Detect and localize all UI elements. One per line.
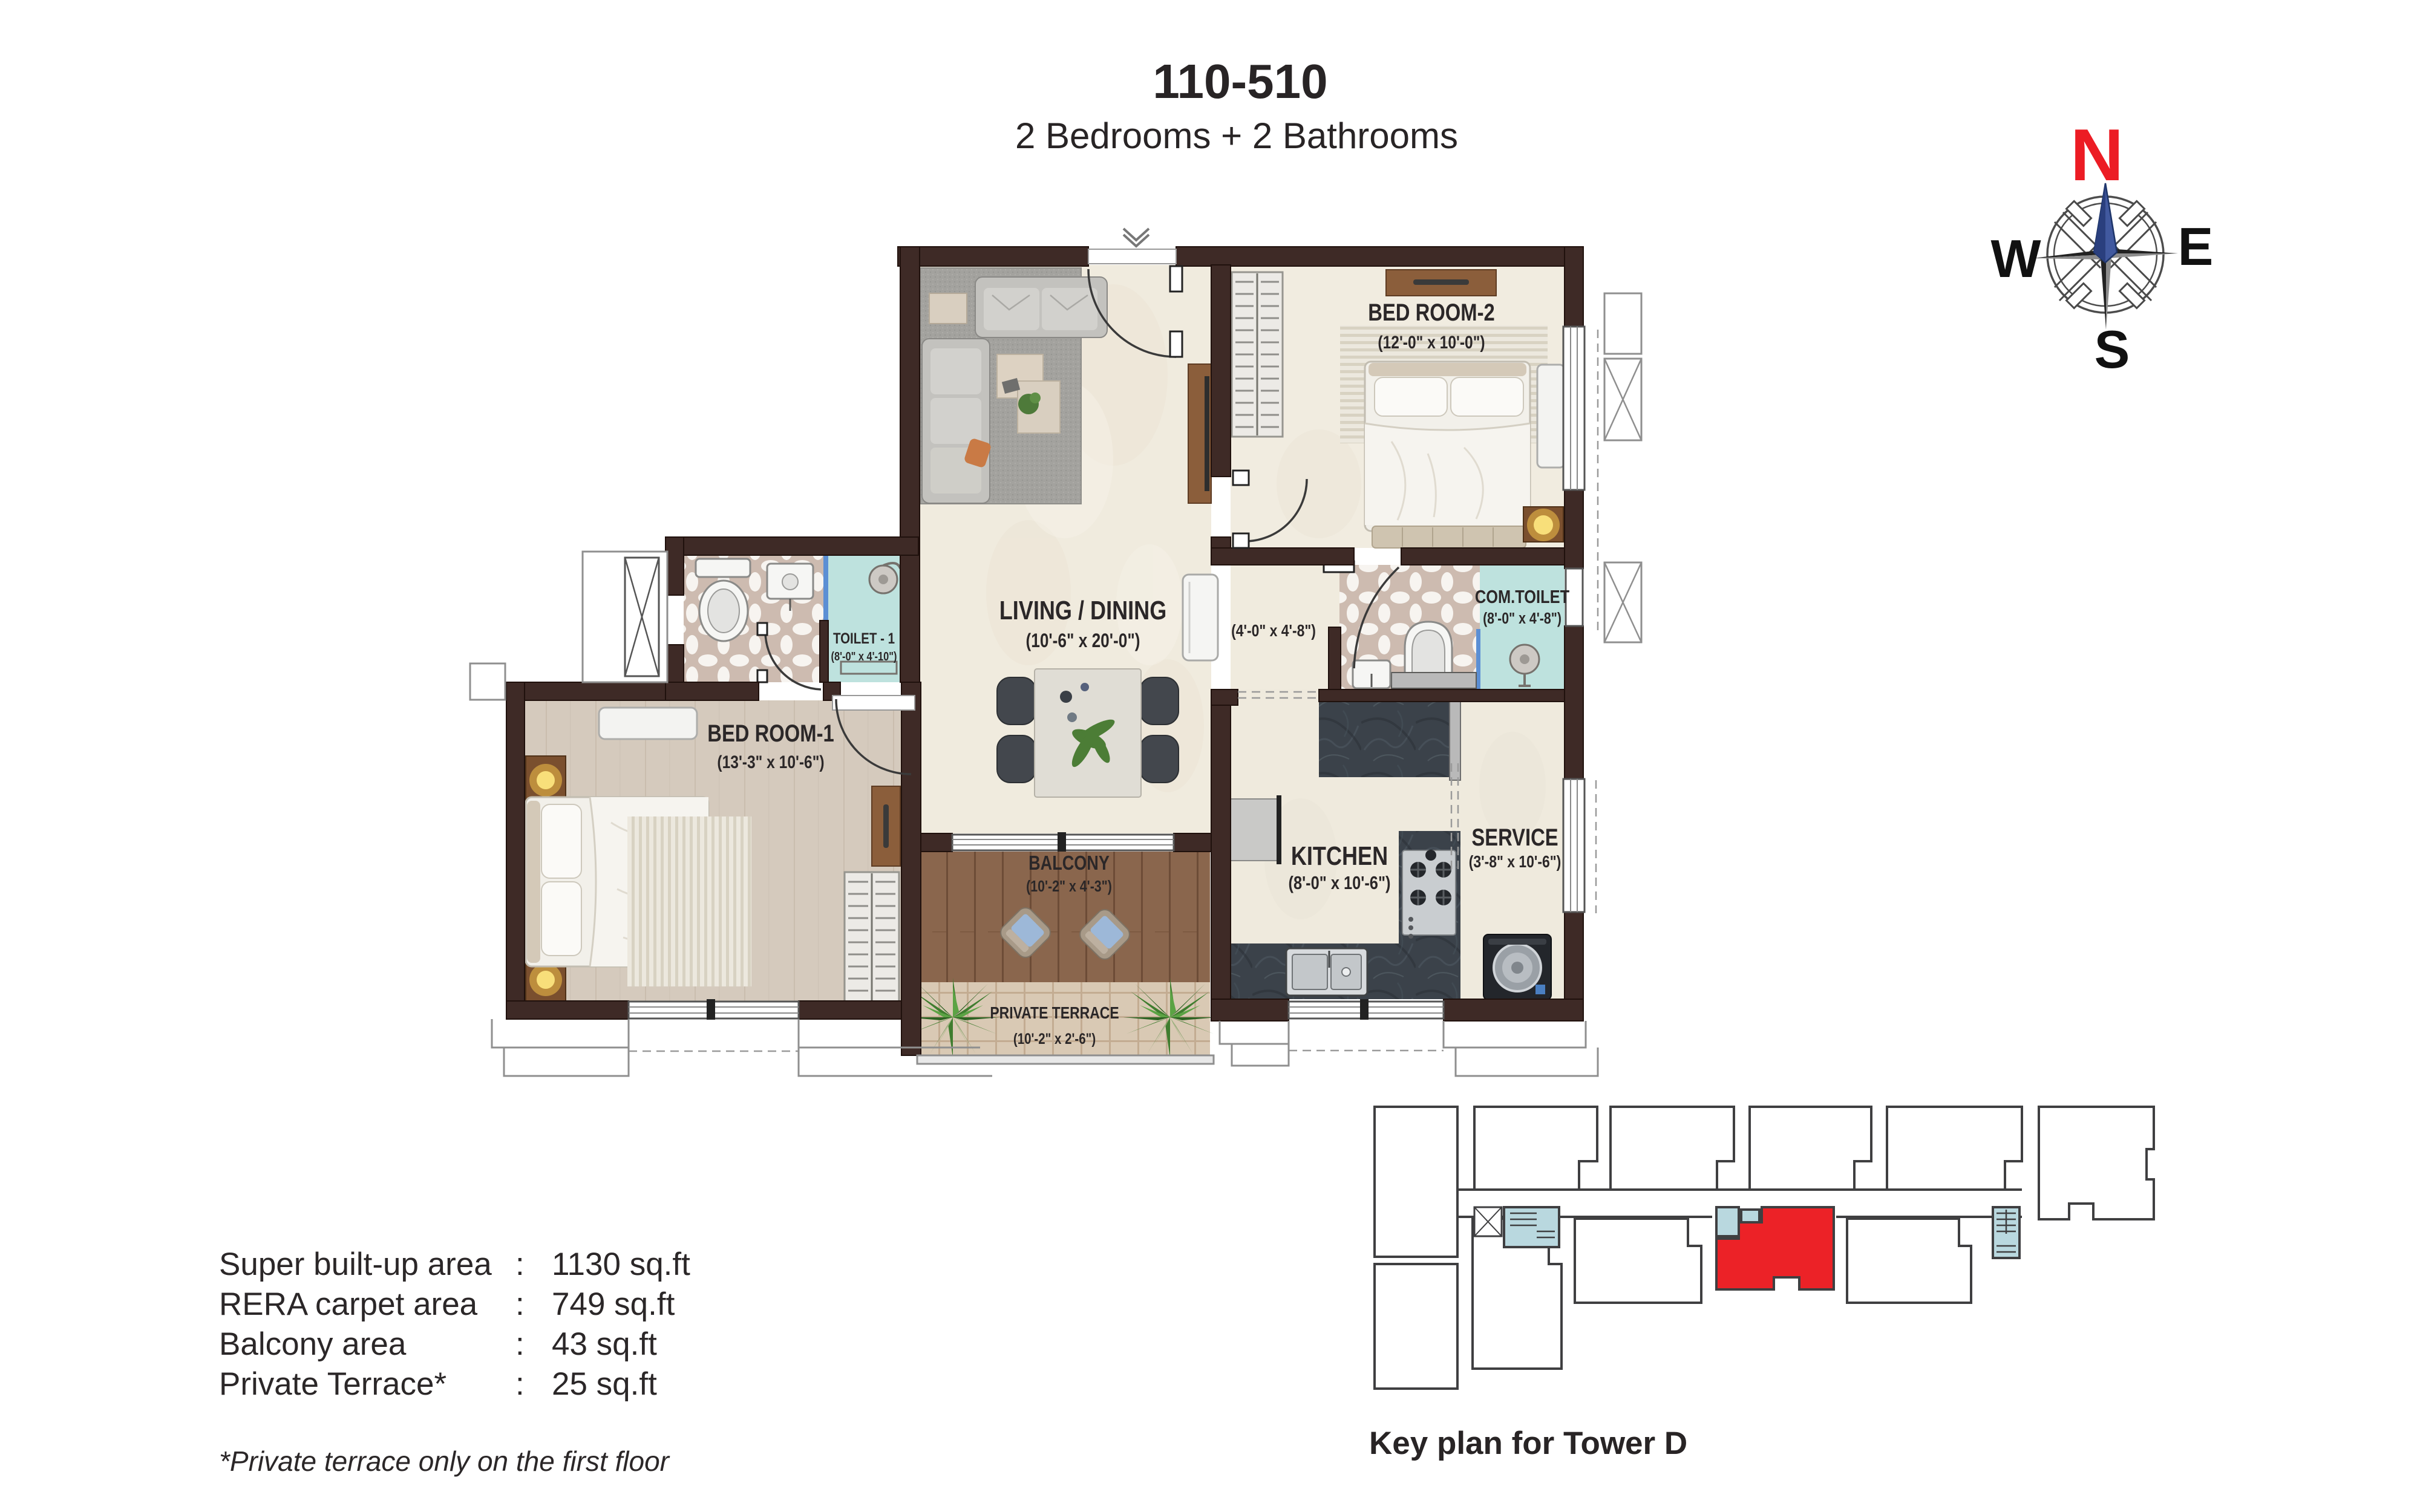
svg-text:(4'-0" x 4'-8"): (4'-0" x 4'-8") <box>1231 622 1316 640</box>
svg-text::: : <box>515 1366 525 1402</box>
svg-text:BED ROOM-1: BED ROOM-1 <box>707 720 834 747</box>
svg-text:E: E <box>2178 217 2214 276</box>
svg-text:Private Terrace*: Private Terrace* <box>219 1366 446 1402</box>
svg-text:(8'-0" x 4'-10"): (8'-0" x 4'-10") <box>831 649 897 663</box>
svg-text:(13'-3" x 10'-6"): (13'-3" x 10'-6") <box>717 752 824 772</box>
svg-text:KITCHEN: KITCHEN <box>1291 841 1388 871</box>
svg-text:(8'-0" x 4'-8"): (8'-0" x 4'-8") <box>1483 610 1562 628</box>
svg-text:COM.TOILET: COM.TOILET <box>1475 587 1569 608</box>
svg-text:S: S <box>2095 319 2130 379</box>
svg-text:25 sq.ft: 25 sq.ft <box>552 1366 657 1402</box>
svg-text:(12'-0" x 10'-0"): (12'-0" x 10'-0") <box>1378 332 1485 353</box>
svg-text:*Private terrace only on the f: *Private terrace only on the first floor <box>219 1445 670 1477</box>
svg-text:(8'-0" x 10'-6"): (8'-0" x 10'-6") <box>1289 873 1391 894</box>
svg-text:RERA carpet area: RERA carpet area <box>219 1286 478 1322</box>
svg-text:LIVING / DINING: LIVING / DINING <box>999 596 1167 625</box>
svg-text:BALCONY: BALCONY <box>1028 853 1110 875</box>
svg-text:2 Bedrooms + 2 Bathrooms: 2 Bedrooms + 2 Bathrooms <box>1015 116 1458 156</box>
svg-text::: : <box>515 1286 525 1322</box>
svg-text:(10'-6" x 20'-0"): (10'-6" x 20'-0") <box>1026 631 1140 652</box>
svg-text:110-510: 110-510 <box>1153 54 1327 108</box>
svg-text:W: W <box>1990 229 2041 288</box>
svg-text:TOILET - 1: TOILET - 1 <box>833 630 895 647</box>
svg-text::: : <box>515 1326 525 1362</box>
svg-text:PRIVATE TERRACE: PRIVATE TERRACE <box>990 1004 1119 1023</box>
svg-text:SERVICE: SERVICE <box>1471 824 1558 851</box>
svg-text:Balcony area: Balcony area <box>219 1326 407 1362</box>
svg-text::: : <box>515 1246 525 1282</box>
svg-text:(10'-2" x 2'-6"): (10'-2" x 2'-6") <box>1013 1030 1096 1047</box>
svg-text:BED ROOM-2: BED ROOM-2 <box>1368 299 1494 326</box>
svg-text:(10'-2" x 4'-3"): (10'-2" x 4'-3") <box>1026 878 1112 896</box>
svg-text:Super built-up area: Super built-up area <box>219 1246 492 1282</box>
svg-text:749 sq.ft: 749 sq.ft <box>552 1286 675 1322</box>
svg-text:43 sq.ft: 43 sq.ft <box>552 1326 657 1362</box>
svg-text:N: N <box>2070 114 2124 196</box>
svg-text:1130 sq.ft: 1130 sq.ft <box>552 1246 690 1282</box>
svg-text:Key plan for Tower D: Key plan for Tower D <box>1369 1426 1687 1461</box>
svg-text:(3'-8" x 10'-6"): (3'-8" x 10'-6") <box>1469 853 1562 872</box>
